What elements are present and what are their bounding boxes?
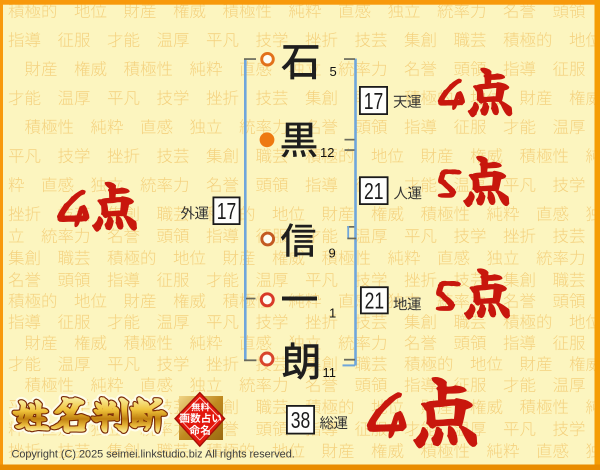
svg-text:5: 5 (330, 64, 337, 79)
svg-text:11: 11 (323, 365, 337, 380)
svg-text:38: 38 (291, 407, 311, 433)
svg-text:12: 12 (320, 145, 334, 160)
svg-text:Copyright (C) 2025 seimei.link: Copyright (C) 2025 seimei.linkstudio.biz… (12, 448, 295, 460)
svg-text:17: 17 (364, 88, 384, 114)
svg-text:21: 21 (365, 288, 385, 314)
svg-text:17: 17 (217, 198, 237, 224)
svg-text:9: 9 (329, 246, 336, 261)
svg-text:1: 1 (329, 306, 336, 321)
svg-text:21: 21 (364, 178, 384, 204)
